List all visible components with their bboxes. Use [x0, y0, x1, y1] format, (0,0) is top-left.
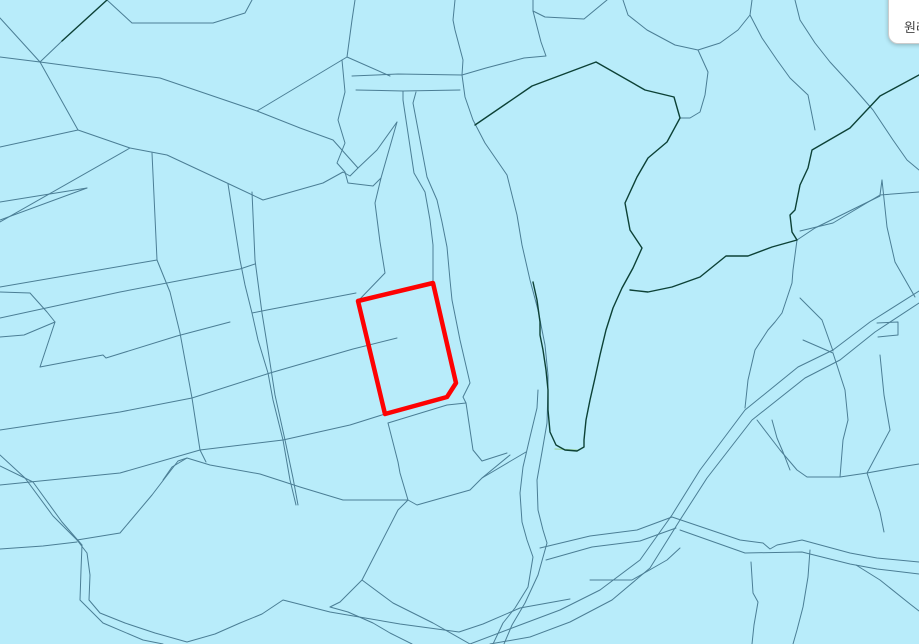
parcel-boundary-line	[772, 420, 790, 470]
parcel-boundary-line	[623, 0, 752, 50]
parcel-boundary-line	[880, 192, 919, 195]
district-boundary-line	[475, 62, 680, 451]
parcel-boundary-line	[882, 180, 915, 297]
parcel-boundary-line	[751, 562, 758, 644]
parcel-boundary-line	[453, 0, 463, 75]
parcel-boundary-line	[0, 148, 130, 222]
parcel-boundary-line	[470, 291, 919, 644]
parcel-boundary-line	[0, 260, 157, 287]
parcel-boundary-line	[352, 74, 462, 76]
parcel-boundary-line	[257, 57, 390, 111]
parcel-boundary-line	[107, 0, 252, 23]
cadastral-map-viewport[interactable]: 원래	[0, 0, 919, 644]
parcel-boundary-line	[800, 298, 833, 351]
parcel-boundary-line	[462, 11, 546, 75]
parcel-boundary-line	[40, 62, 397, 200]
parcel-boundary-line	[77, 455, 510, 540]
selected-parcel-outline	[358, 283, 456, 414]
parcel-boundary-line	[856, 565, 919, 611]
parcel-boundary-line	[0, 542, 77, 549]
parcel-boundary-line	[40, 322, 230, 367]
parcel-boundary-line	[0, 57, 40, 62]
parcel-boundary-line	[490, 303, 919, 644]
parcel-boundary-line	[347, 0, 355, 57]
parcel-boundary-line	[0, 322, 55, 337]
parcel-boundary-line	[797, 196, 880, 240]
parcel-boundary-line	[228, 184, 296, 505]
parcel-boundary-line	[750, 15, 815, 130]
parcel-boundary-line	[0, 292, 55, 322]
parcel-boundary-line	[0, 188, 87, 202]
parcel-boundary-line	[800, 195, 880, 231]
parcel-boundary-line	[0, 338, 397, 430]
parcel-boundary-line	[388, 403, 466, 423]
parcel-boundary-line	[793, 550, 810, 644]
parcel-boundary-line	[337, 60, 397, 186]
parcel-boundary-line	[840, 420, 848, 477]
parcel-boundary-line	[0, 188, 87, 220]
parcel-boundary-line	[533, 0, 607, 19]
parcel-boundary-line	[0, 264, 255, 318]
parcel-boundary-line	[152, 153, 206, 462]
parcel-boundary-line	[403, 91, 433, 283]
parcel-boundary-line	[546, 528, 676, 560]
parcel-boundary-line	[745, 240, 797, 408]
parcel-boundary-line	[757, 420, 867, 477]
parcel-boundary-line	[466, 403, 507, 461]
parcel-boundary-line	[0, 414, 385, 485]
parcel-boundary-line	[40, 322, 55, 367]
parcel-boundary-line	[867, 473, 884, 532]
district-boundary-line	[630, 75, 919, 292]
parcel-boundary-line	[0, 455, 77, 540]
parcel-boundary-line	[388, 423, 408, 500]
parcel-boundary-line	[803, 340, 833, 353]
parcel-boundary-line	[833, 353, 848, 420]
cadastral-map[interactable]	[0, 0, 919, 644]
parcel-boundary-line	[482, 452, 526, 478]
parcel-boundary-line	[867, 355, 890, 473]
reset-view-button[interactable]: 원래	[888, 0, 919, 44]
parcel-boundary-line	[680, 50, 708, 118]
parcel-boundary-line	[356, 90, 460, 91]
parcel-boundary-line	[330, 607, 412, 644]
parcel-boundary-line	[80, 545, 163, 644]
parcel-boundary-line	[462, 75, 548, 390]
parcel-boundary-line	[0, 130, 78, 147]
reset-view-button-label: 원래	[904, 17, 919, 36]
parcel-boundary-line	[358, 178, 385, 301]
parcel-boundary-line	[330, 500, 408, 607]
parcel-boundary-line	[0, 18, 40, 62]
parcel-boundary-line	[252, 192, 298, 505]
parcel-boundary-line	[257, 111, 358, 168]
district-boundary-line	[62, 0, 107, 41]
parcel-boundary-line	[40, 41, 62, 62]
parcel-boundary-line	[867, 464, 919, 473]
parcel-boundary-line	[252, 293, 356, 313]
parcel-boundary-line	[680, 530, 919, 574]
parcel-boundary-line	[362, 580, 470, 644]
parcel-boundary-line	[77, 540, 570, 642]
parcel-boundary-line	[880, 180, 882, 195]
parcel-boundary-line	[413, 92, 470, 403]
parcel-boundary-line	[40, 62, 257, 111]
parcel-boundary-line	[504, 390, 548, 644]
